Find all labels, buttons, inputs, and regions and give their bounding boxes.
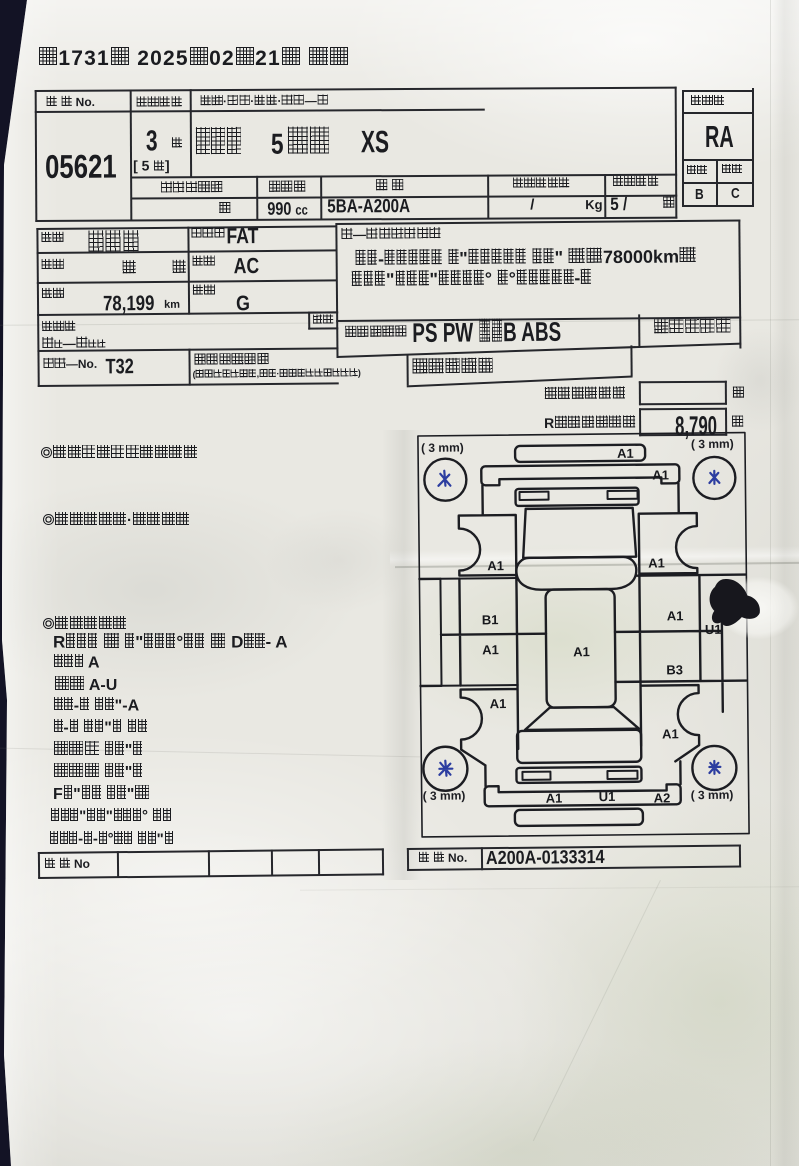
svg-text:( 3 mm): ( 3 mm) xyxy=(691,437,734,451)
svg-text:( 3 mm): ( 3 mm) xyxy=(423,789,466,803)
svg-text:B3: B3 xyxy=(666,662,683,677)
svg-text:A1: A1 xyxy=(546,791,563,806)
svg-text:A2: A2 xyxy=(654,790,671,805)
svg-text:A1: A1 xyxy=(617,446,634,461)
svg-text:A1: A1 xyxy=(487,558,504,573)
svg-text:B1: B1 xyxy=(482,612,499,627)
svg-text:A1: A1 xyxy=(667,608,684,623)
svg-text:A1: A1 xyxy=(662,726,679,741)
svg-text:A1: A1 xyxy=(490,696,507,711)
svg-text:( 3 mm): ( 3 mm) xyxy=(691,788,734,802)
svg-text:A1: A1 xyxy=(573,644,590,659)
svg-text:A1: A1 xyxy=(482,642,499,657)
svg-text:( 3 mm): ( 3 mm) xyxy=(421,441,464,455)
svg-text:U1: U1 xyxy=(599,789,616,804)
svg-text:A1: A1 xyxy=(652,467,669,482)
svg-text:A1: A1 xyxy=(648,555,665,570)
